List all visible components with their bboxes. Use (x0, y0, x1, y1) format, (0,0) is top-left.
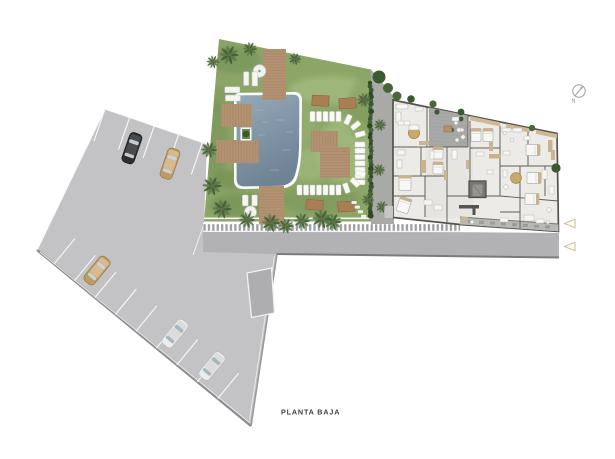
svg-text:PLANTA BAJA: PLANTA BAJA (281, 408, 340, 417)
svg-text:N: N (572, 99, 576, 105)
